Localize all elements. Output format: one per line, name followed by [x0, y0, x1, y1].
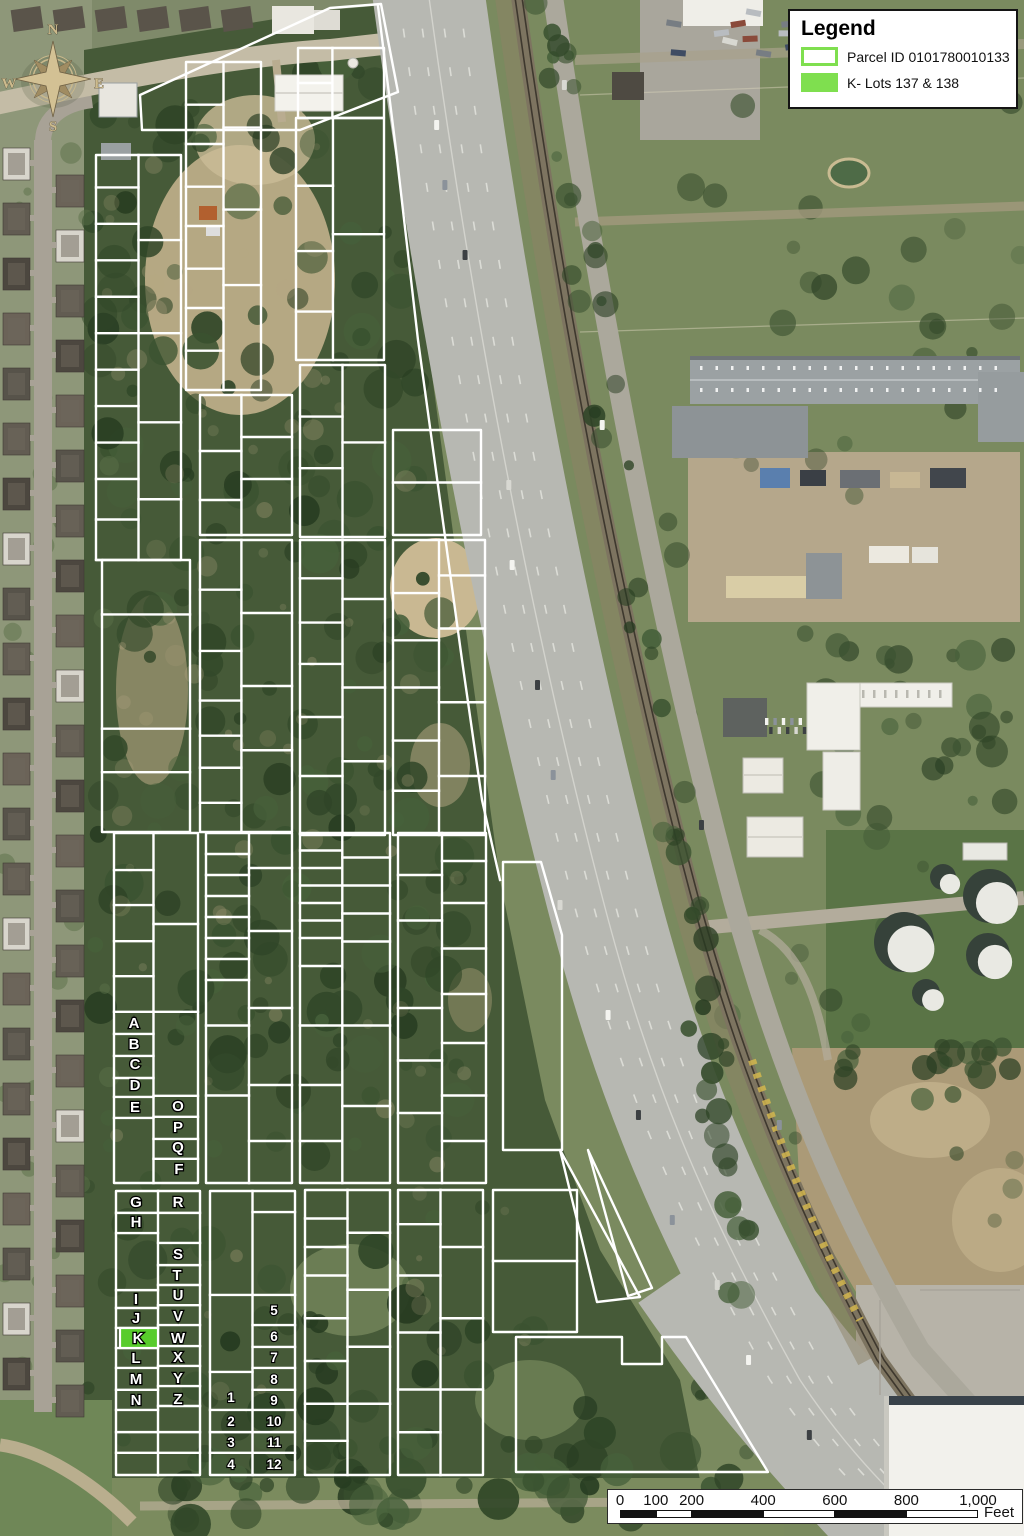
legend-title: Legend — [801, 17, 1016, 41]
lot-label-O: O — [172, 1098, 184, 1115]
lot-label-4: 4 — [227, 1457, 235, 1472]
lot-label-J: J — [132, 1310, 140, 1327]
scale-tick-400: 400 — [741, 1492, 785, 1509]
lot-label-C: C — [130, 1056, 141, 1073]
lot-label-Y: Y — [173, 1370, 183, 1387]
compass-n: N — [48, 22, 59, 38]
scale-segment — [692, 1510, 764, 1518]
lot-label-D: D — [130, 1077, 141, 1094]
lot-label-I: I — [134, 1291, 138, 1308]
legend-item-parcel: Parcel ID 0101780010133 — [801, 47, 1016, 66]
tank-farm-building — [963, 843, 1007, 860]
scale-tick-1,000: 1,000 — [956, 1492, 1000, 1509]
water-tank — [348, 58, 358, 68]
legend-panel: Legend Parcel ID 0101780010133 K- Lots 1… — [788, 9, 1018, 109]
residential-street — [34, 140, 52, 1412]
lot-label-6: 6 — [270, 1329, 278, 1344]
scale-segment — [835, 1510, 907, 1518]
lot-label-L: L — [131, 1350, 140, 1367]
compass-w: W — [2, 76, 17, 92]
lot-label-5: 5 — [270, 1303, 278, 1318]
lot-label-3: 3 — [227, 1435, 235, 1450]
compass-rose: N E S W — [0, 0, 120, 132]
lot-label-N: N — [131, 1392, 142, 1409]
scale-tick-800: 800 — [884, 1492, 928, 1509]
k-lots-swatch — [801, 73, 838, 92]
pond — [829, 159, 869, 187]
scale-segment — [656, 1510, 692, 1518]
legend-item-klots: K- Lots 137 & 138 — [801, 73, 1016, 92]
lot-label-9: 9 — [270, 1393, 278, 1408]
lot-label-F: F — [174, 1161, 183, 1178]
lot-label-K: K — [133, 1330, 144, 1347]
lot-label-P: P — [173, 1119, 183, 1136]
dark-building — [723, 698, 767, 737]
scale-segment — [620, 1510, 656, 1518]
building — [101, 143, 131, 160]
lot-label-2: 2 — [227, 1414, 235, 1429]
house — [612, 72, 644, 100]
compass-main-star — [15, 41, 91, 117]
compass-s: S — [49, 119, 57, 132]
aerial-map-image: ABCDEOPQFGHIJKLMNRSTUVWXYZ12345678910111… — [0, 0, 1024, 1536]
truck — [199, 206, 217, 220]
map-page: ABCDEOPQFGHIJKLMNRSTUVWXYZ12345678910111… — [0, 0, 1024, 1536]
lot-label-E: E — [130, 1099, 140, 1116]
lot-label-8: 8 — [270, 1372, 278, 1387]
scale-segment — [906, 1510, 978, 1518]
lot-label-11: 11 — [267, 1435, 282, 1450]
scale-tick-200: 200 — [670, 1492, 714, 1509]
lot-label-V: V — [173, 1308, 183, 1325]
lot-label-Q: Q — [172, 1139, 184, 1156]
compass-e: E — [94, 76, 104, 92]
parcel-outline-swatch — [801, 47, 838, 66]
lot-label-G: G — [130, 1194, 142, 1211]
lot-label-B: B — [129, 1036, 140, 1053]
lot-label-A: A — [129, 1015, 140, 1032]
lot-label-12: 12 — [266, 1457, 281, 1472]
scale-segment — [763, 1510, 835, 1518]
lot-label-S: S — [173, 1246, 183, 1263]
lot-label-T: T — [172, 1267, 181, 1284]
scale-bar: Feet 01002004006008001,000 — [607, 1489, 1023, 1524]
lot-label-10: 10 — [266, 1414, 281, 1429]
scale-tick-600: 600 — [813, 1492, 857, 1509]
lot-label-1: 1 — [227, 1390, 235, 1405]
lot-label-R: R — [173, 1194, 184, 1211]
lot-label-Z: Z — [173, 1391, 182, 1408]
lot-label-7: 7 — [270, 1350, 278, 1365]
lot-label-X: X — [173, 1349, 183, 1366]
lot-label-W: W — [171, 1330, 186, 1347]
lot-label-U: U — [173, 1287, 184, 1304]
lot-label-H: H — [131, 1214, 142, 1231]
lot-label-M: M — [130, 1371, 143, 1388]
